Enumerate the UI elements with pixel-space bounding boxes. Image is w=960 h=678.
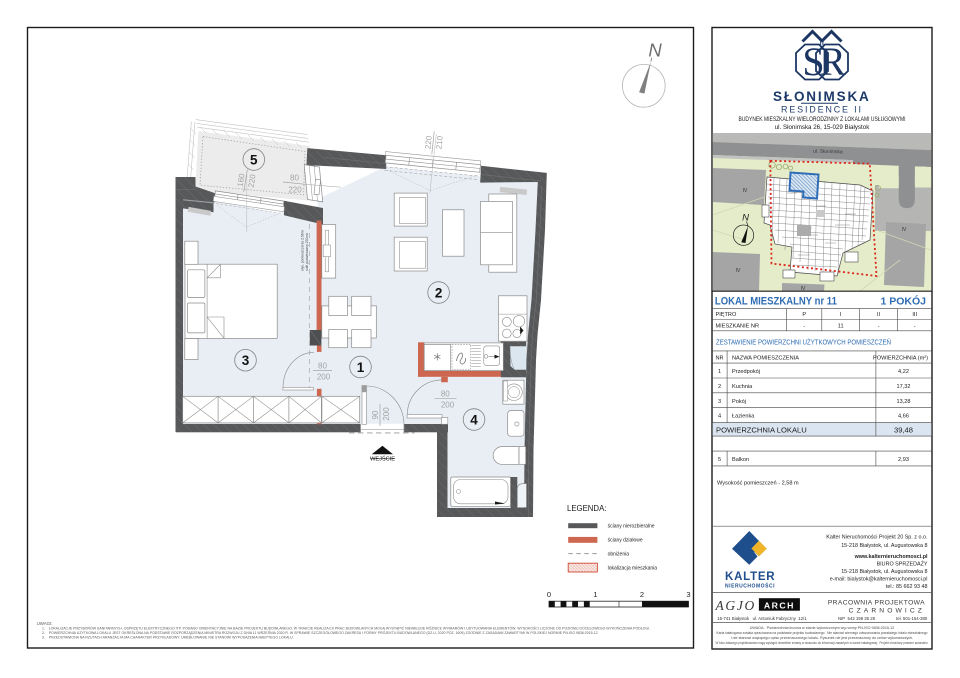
svg-text:1: 1 bbox=[593, 590, 597, 599]
svg-text:80: 80 bbox=[318, 362, 327, 371]
svg-text:Wysokość pomieszczeń - 2,58 m: Wysokość pomieszczeń - 2,58 m bbox=[717, 481, 799, 487]
svg-text:sufit podwieszany 230cm: sufit podwieszany 230cm bbox=[305, 233, 309, 271]
svg-text:RESIDENCE II: RESIDENCE II bbox=[781, 105, 863, 115]
svg-text:POWIERZCHNIA LOKALU: POWIERZCHNIA LOKALU bbox=[716, 425, 807, 434]
svg-text:BIURO SPRZEDAŻY: BIURO SPRZEDAŻY bbox=[877, 560, 928, 567]
svg-text:ściany działowe: ściany działowe bbox=[608, 538, 643, 544]
svg-text:LOKAL MIESZKALNY nr 11: LOKAL MIESZKALNY nr 11 bbox=[715, 296, 837, 308]
svg-text:ZESTAWIENIE POWIERZCHNI UŻYTKO: ZESTAWIENIE POWIERZCHNI UŻYTKOWYCH POMIE… bbox=[716, 338, 891, 347]
svg-text:IV: IV bbox=[902, 227, 907, 233]
svg-text:lokalizacja mieszkania: lokalizacja mieszkania bbox=[608, 565, 658, 571]
svg-text:Pokój: Pokój bbox=[732, 399, 746, 405]
svg-text:IV: IV bbox=[736, 268, 741, 274]
svg-text:MIESZKANIE NR: MIESZKANIE NR bbox=[716, 323, 760, 329]
svg-text:15-218 Białystok, ul. Augustow: 15-218 Białystok, ul. Augustowska 8 bbox=[841, 543, 927, 549]
svg-text:80: 80 bbox=[290, 173, 299, 182]
svg-text:2: 2 bbox=[718, 384, 721, 390]
svg-text:www.kalternieruchomosci.pl: www.kalternieruchomosci.pl bbox=[854, 554, 928, 560]
svg-text:NAZWA POMIESZCZENIA: NAZWA POMIESZCZENIA bbox=[732, 356, 799, 362]
svg-text:Kalter Nieruchomości Projekt 2: Kalter Nieruchomości Projekt 20 Sp. z o.… bbox=[826, 534, 927, 540]
svg-text:III: III bbox=[912, 312, 917, 318]
svg-text:2: 2 bbox=[640, 590, 644, 599]
svg-text:5: 5 bbox=[718, 457, 721, 463]
svg-text:5: 5 bbox=[250, 152, 258, 167]
svg-text:PIĘTRO: PIĘTRO bbox=[716, 312, 737, 318]
svg-text:IV: IV bbox=[743, 188, 748, 194]
svg-text:200: 200 bbox=[382, 407, 391, 421]
svg-text:Balkon: Balkon bbox=[732, 457, 749, 463]
svg-text:200: 200 bbox=[441, 401, 455, 410]
svg-text:LEGENDA:: LEGENDA: bbox=[567, 504, 606, 513]
svg-text:1. LOKALIZACJE PRZYBORÓW SA: 1. LOKALIZACJE PRZYBORÓW SANITARNYCH, OS… bbox=[42, 626, 650, 631]
svg-text:15-218 Białystok, ul. Augustow: 15-218 Białystok, ul. Augustowska 8 bbox=[841, 569, 927, 575]
svg-text:-: - bbox=[803, 323, 805, 329]
svg-text:II: II bbox=[877, 312, 881, 318]
svg-text:Łazienka: Łazienka bbox=[732, 414, 755, 420]
svg-text:wys. pomieszczenia 2.58m: wys. pomieszczenia 2.58m bbox=[301, 230, 305, 271]
svg-text:KALTER: KALTER bbox=[725, 571, 775, 583]
svg-text:tel.: 85 662 93 48: tel.: 85 662 93 48 bbox=[886, 584, 928, 590]
svg-text:3: 3 bbox=[686, 590, 690, 599]
svg-text:tel. 501-154-380: tel. 501-154-380 bbox=[896, 616, 928, 621]
svg-text:2: 2 bbox=[435, 285, 443, 300]
svg-text:N: N bbox=[648, 40, 662, 61]
svg-text:UWAGI:: UWAGI: bbox=[37, 621, 53, 626]
svg-text:4,66: 4,66 bbox=[898, 414, 909, 420]
svg-text:N: N bbox=[742, 213, 749, 224]
svg-text:39,48: 39,48 bbox=[894, 425, 913, 434]
svg-text:ul. Słonimska: ul. Słonimska bbox=[813, 149, 843, 156]
svg-text:4: 4 bbox=[470, 412, 478, 427]
svg-text:UWAGA: Powierzchnia liczona w: UWAGA: Powierzchnia liczona w stanie wyk… bbox=[750, 626, 895, 630]
svg-text:2. POWIERZCHNIA UŻYTKOWA LO: 2. POWIERZCHNIA UŻYTKOWA LOKALU JEST OKR… bbox=[42, 630, 598, 635]
svg-text:BUDYNEK MIESZKALNY WIELORODZIN: BUDYNEK MIESZKALNY WIELORODZINNY Z LOKAL… bbox=[739, 117, 906, 123]
svg-text:2,93: 2,93 bbox=[898, 457, 909, 463]
svg-text:13,28: 13,28 bbox=[897, 399, 911, 405]
svg-text:4: 4 bbox=[718, 414, 721, 420]
svg-text:-: - bbox=[878, 323, 880, 329]
svg-text:e-mail: bialystok@kalternieruc: e-mail: bialystok@kalternieruchomosci.pl bbox=[830, 576, 928, 582]
svg-text:PRACOWNIA PROJEKTOWA: PRACOWNIA PROJEKTOWA bbox=[828, 599, 925, 606]
svg-text:0: 0 bbox=[547, 590, 551, 599]
svg-text:ściany nierozbieralne: ściany nierozbieralne bbox=[608, 524, 655, 530]
svg-text:Kuchnia: Kuchnia bbox=[732, 384, 753, 390]
svg-text:11: 11 bbox=[838, 323, 844, 329]
svg-text:R: R bbox=[819, 39, 846, 84]
svg-text:1: 1 bbox=[718, 369, 721, 375]
svg-text:P: P bbox=[802, 312, 806, 318]
svg-text:1: 1 bbox=[357, 360, 365, 375]
svg-text:SŁONIMSKA: SŁONIMSKA bbox=[773, 89, 871, 104]
svg-text:POWIERZCHNIA (m²): POWIERZCHNIA (m²) bbox=[873, 356, 928, 362]
svg-text:Przedpokój: Przedpokój bbox=[732, 369, 760, 375]
svg-text:-: - bbox=[914, 323, 916, 329]
svg-text:NR: NR bbox=[715, 356, 723, 362]
svg-text:AGJO: AGJO bbox=[715, 598, 756, 613]
svg-text:4,22: 4,22 bbox=[898, 369, 909, 375]
svg-text:80: 80 bbox=[441, 389, 450, 398]
svg-text:W toku dalszego projektowania: W toku dalszego projektowania mogą wystą… bbox=[716, 641, 929, 645]
svg-text:Karta katalogowa została oprac: Karta katalogowa została opracowana na p… bbox=[717, 631, 928, 635]
svg-text:15-741 Białystok ul. Antoniu: 15-741 Białystok ul. Antoniuk Fabryczny … bbox=[717, 616, 807, 621]
svg-text:i nie stanowi wiążącego opisu: i nie stanowi wiążącego opisu przeznaczo… bbox=[731, 636, 913, 640]
svg-text:1 POKÓJ: 1 POKÓJ bbox=[880, 295, 926, 308]
svg-text:200: 200 bbox=[317, 373, 331, 382]
svg-text:3: 3 bbox=[242, 353, 250, 368]
svg-text:3: 3 bbox=[718, 399, 721, 405]
svg-text:CZARNOWICZ: CZARNOWICZ bbox=[849, 607, 925, 614]
svg-text:NIP 542 198 35 28: NIP 542 198 35 28 bbox=[838, 616, 876, 621]
svg-text:17,32: 17,32 bbox=[897, 384, 911, 390]
svg-text:220: 220 bbox=[288, 185, 302, 194]
svg-text:ul. Słonimska 26, 15-029 Biały: ul. Słonimska 26, 15-029 Białystok bbox=[775, 124, 870, 131]
svg-text:90: 90 bbox=[371, 410, 380, 419]
svg-text:NIERUCHOMOŚCI: NIERUCHOMOŚCI bbox=[725, 583, 775, 590]
svg-text:3. PRZEDSTAWIONA NA RZUTACH: 3. PRZEDSTAWIONA NA RZUTACH ARANŻACJA MA… bbox=[42, 635, 294, 640]
svg-text:ARCH: ARCH bbox=[764, 600, 795, 610]
svg-text:obniżenia: obniżenia bbox=[608, 552, 630, 558]
